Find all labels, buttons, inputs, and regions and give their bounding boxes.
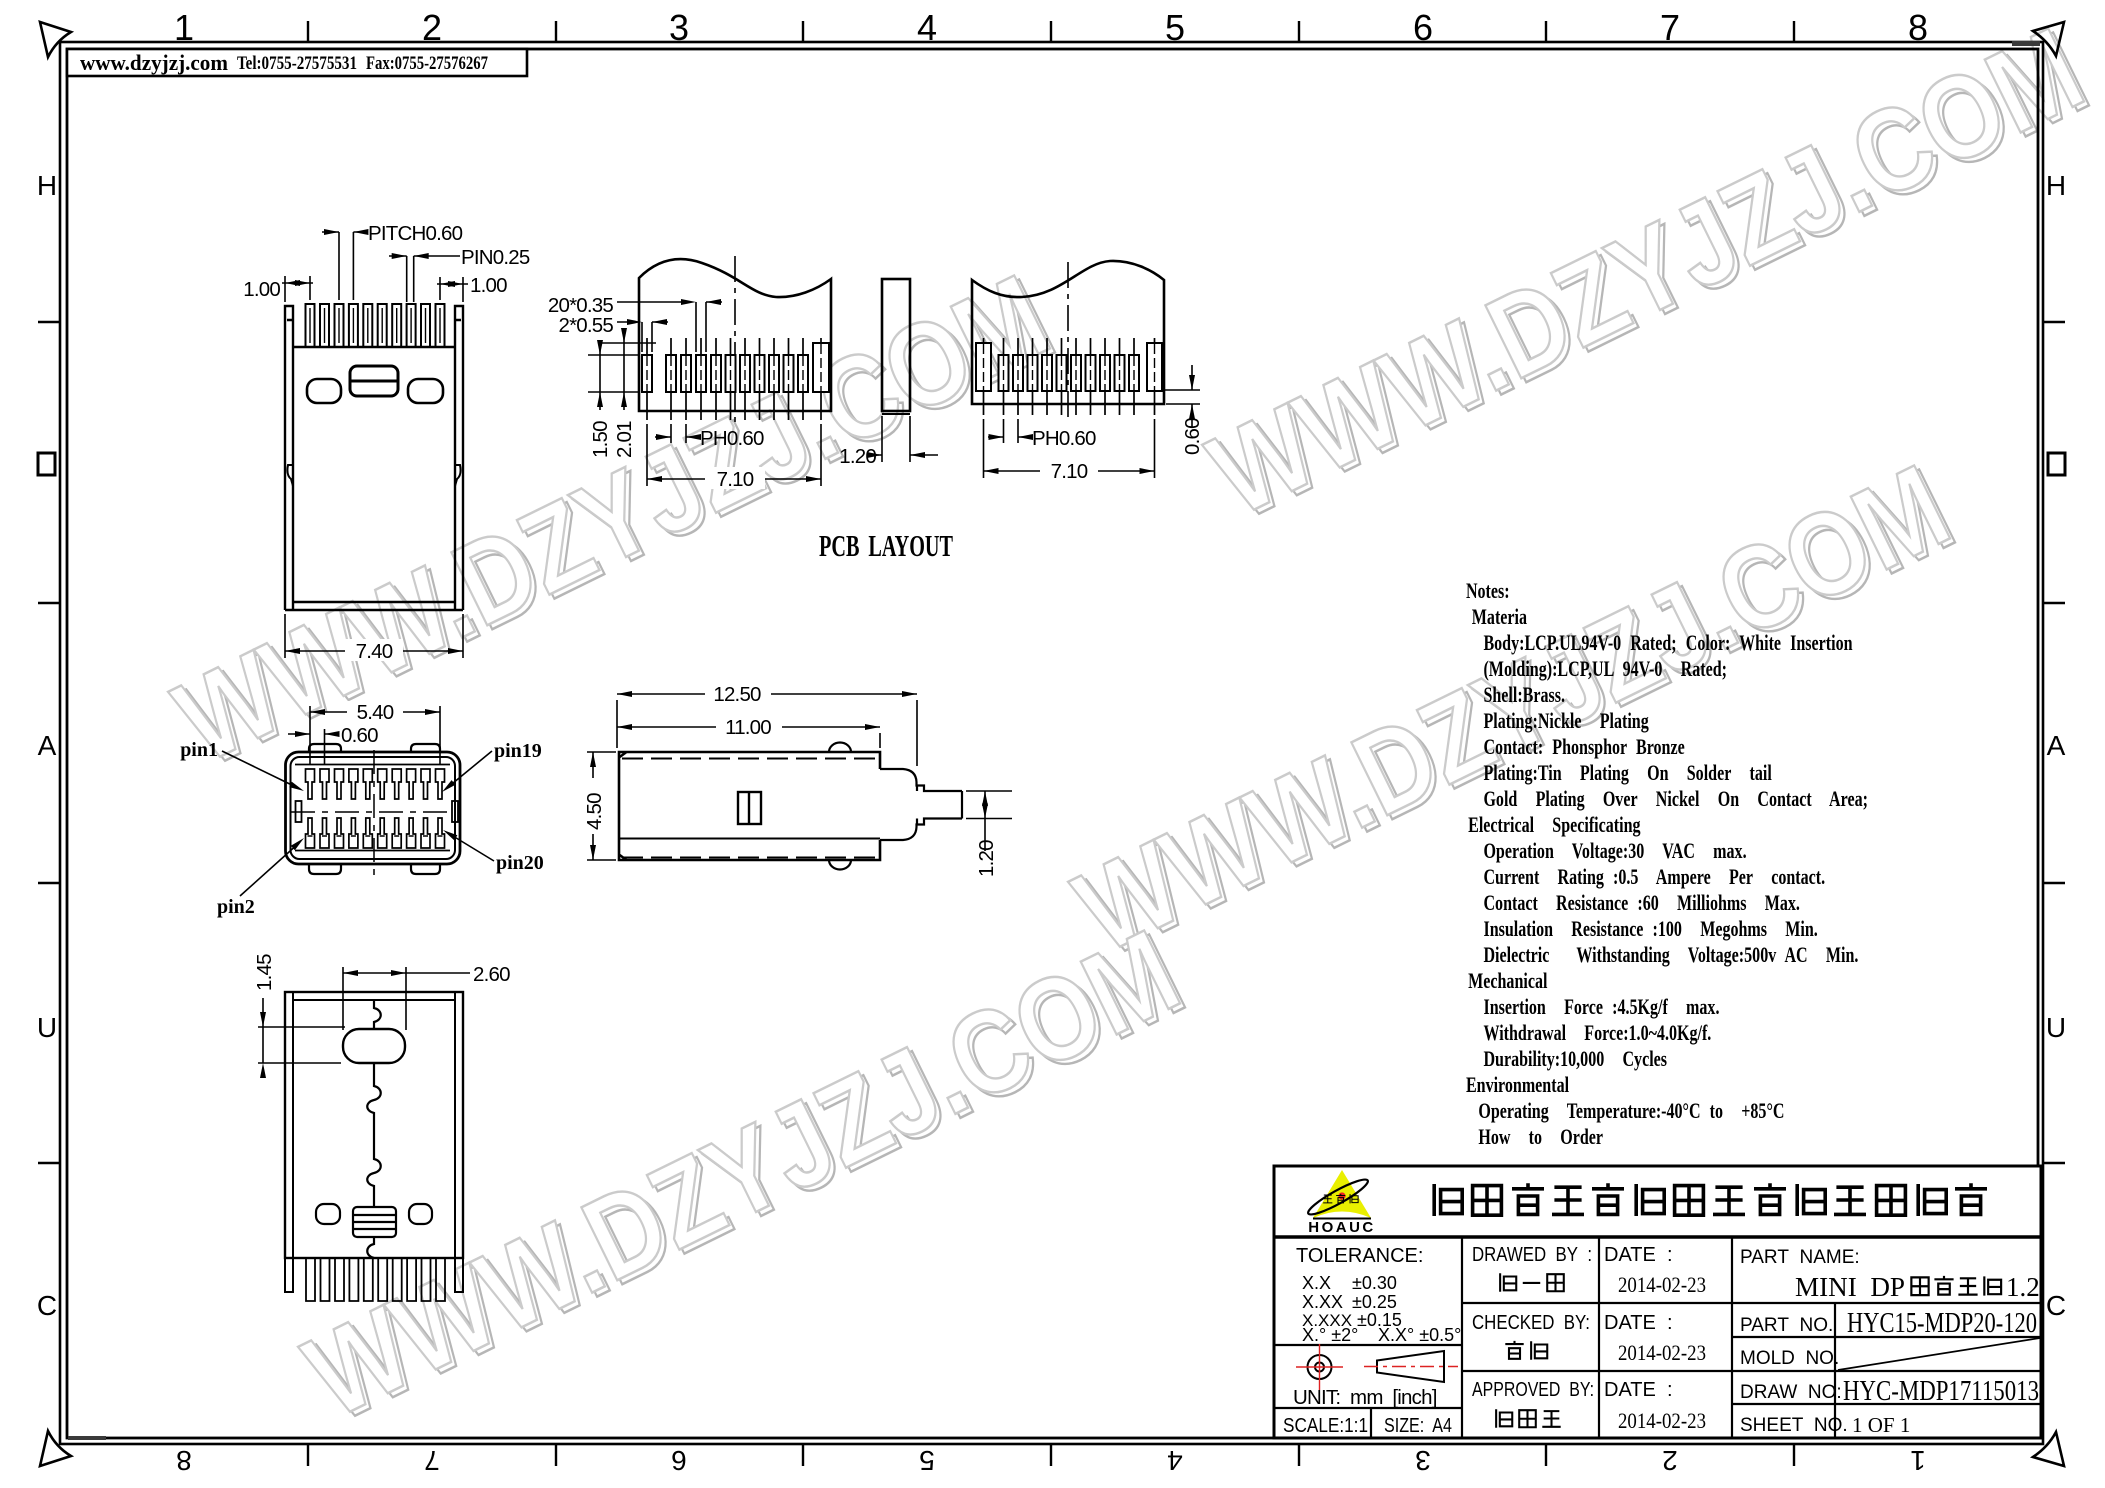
svg-text:Plating:Nickle Plating: Plating:Nickle Plating <box>1483 710 1649 734</box>
svg-text:www.dzyjzj.com: www.dzyjzj.com <box>80 50 228 75</box>
svg-text:Dielectric Withstanding Vol: Dielectric Withstanding Voltage:500v AC … <box>1483 944 1858 968</box>
svg-text:7.10: 7.10 <box>1051 460 1088 483</box>
svg-text:1.2: 1.2 <box>2006 1272 2040 1302</box>
svg-text:Operating Temperature:-40°C t: Operating Temperature:-40°C to +85°C <box>1478 1100 1784 1124</box>
svg-text:PH0.60: PH0.60 <box>700 427 764 450</box>
svg-text:How to Order: How to Order <box>1478 1126 1603 1150</box>
svg-text:PITCH0.60: PITCH0.60 <box>368 222 463 245</box>
svg-text:4.50: 4.50 <box>583 793 606 830</box>
svg-text:SHEET NO.: SHEET NO. <box>1740 1415 1848 1436</box>
svg-text:pin20: pin20 <box>496 852 544 874</box>
svg-text:DRAW NO:: DRAW NO: <box>1740 1382 1842 1403</box>
svg-text:U: U <box>37 1012 57 1043</box>
svg-text:Operation Voltage:30 VAC ma: Operation Voltage:30 VAC max. <box>1483 840 1746 864</box>
svg-text:2.01: 2.01 <box>613 421 636 458</box>
svg-text:Mechanical: Mechanical <box>1468 970 1548 994</box>
svg-text:Durability:10,000 Cycles: Durability:10,000 Cycles <box>1483 1048 1667 1072</box>
svg-text:5.40: 5.40 <box>357 701 394 724</box>
svg-text:5: 5 <box>919 1445 935 1476</box>
svg-text:pin2: pin2 <box>217 896 255 918</box>
svg-text:APPROVED BY:: APPROVED BY: <box>1472 1379 1594 1401</box>
svg-text:Gold Plating Over Nickel O: Gold Plating Over Nickel On Contact Area… <box>1483 788 1868 812</box>
svg-text:3: 3 <box>669 7 689 48</box>
svg-text:1.45: 1.45 <box>253 954 276 991</box>
svg-text:5: 5 <box>1165 7 1185 48</box>
svg-text:X.° ±2°: X.° ±2° <box>1302 1325 1358 1345</box>
svg-text:TOLERANCE:: TOLERANCE: <box>1296 1245 1423 1267</box>
svg-text:1: 1 <box>174 7 194 48</box>
svg-text:C: C <box>37 1290 57 1321</box>
svg-text:Electrical Specificating: Electrical Specificating <box>1468 814 1641 838</box>
svg-text:6: 6 <box>671 1445 687 1476</box>
svg-text:7: 7 <box>1660 7 1680 48</box>
svg-text:PCB LAYOUT: PCB LAYOUT <box>819 528 953 563</box>
svg-text:2014-02-23: 2014-02-23 <box>1618 1340 1706 1365</box>
svg-text:X.X° ±0.5°: X.X° ±0.5° <box>1378 1325 1461 1345</box>
svg-text:UNIT: mm [inch]: UNIT: mm [inch] <box>1293 1386 1437 1409</box>
svg-text:H: H <box>2046 170 2066 201</box>
svg-text:8: 8 <box>1908 7 1928 48</box>
svg-text:Notes:: Notes: <box>1466 580 1510 604</box>
svg-text:7: 7 <box>424 1445 440 1476</box>
svg-text:DRAWED BY :: DRAWED BY : <box>1472 1244 1592 1266</box>
svg-text:2*0.55: 2*0.55 <box>559 314 614 337</box>
svg-text:Body:LCP.UL94V-0 Rated; Color:: Body:LCP.UL94V-0 Rated; Color: White Ins… <box>1483 632 1852 656</box>
svg-text:2.60: 2.60 <box>473 963 510 986</box>
svg-text:HYC-MDP17115013: HYC-MDP17115013 <box>1843 1376 2039 1407</box>
svg-text:A: A <box>38 730 57 761</box>
svg-text:0.60: 0.60 <box>341 724 378 747</box>
svg-text:Tel:0755-27575531: Tel:0755-27575531 <box>237 53 357 74</box>
svg-text:2: 2 <box>1662 1445 1678 1476</box>
svg-text:X.XX: X.XX <box>1302 1292 1343 1312</box>
svg-text:7.40: 7.40 <box>356 640 393 663</box>
svg-text:±0.30: ±0.30 <box>1352 1273 1397 1293</box>
svg-text:7.10: 7.10 <box>717 468 754 491</box>
svg-text:U: U <box>2046 1012 2066 1043</box>
svg-text:1.20: 1.20 <box>975 840 998 877</box>
svg-text:Environmental: Environmental <box>1466 1074 1570 1098</box>
svg-text:4: 4 <box>1167 1445 1183 1476</box>
svg-text:Materia: Materia <box>1472 606 1528 630</box>
svg-text:SIZE: A4: SIZE: A4 <box>1384 1415 1452 1437</box>
svg-text:DATE :: DATE : <box>1604 1379 1673 1401</box>
svg-text:MOLD NO.: MOLD NO. <box>1740 1348 1839 1369</box>
svg-text:8: 8 <box>176 1445 192 1476</box>
svg-text:12.50: 12.50 <box>713 683 761 706</box>
svg-text:SCALE:1:1: SCALE:1:1 <box>1283 1415 1368 1437</box>
svg-text:Current Rating :0.5 Ampere: Current Rating :0.5 Ampere Per contact. <box>1483 866 1825 890</box>
svg-text:1.00: 1.00 <box>243 278 280 301</box>
svg-text:6: 6 <box>1413 7 1433 48</box>
svg-text:PH0.60: PH0.60 <box>1032 427 1096 450</box>
svg-text:4: 4 <box>917 7 937 48</box>
svg-text:Insertion Force :4.5Kg/f max: Insertion Force :4.5Kg/f max. <box>1483 996 1719 1020</box>
svg-text:Contact Resistance :60 Milli: Contact Resistance :60 Milliohms Max. <box>1483 892 1799 916</box>
svg-text:Shell:Brass.: Shell:Brass. <box>1483 684 1565 708</box>
svg-text:CHECKED BY:: CHECKED BY: <box>1472 1312 1590 1334</box>
svg-text:1.00: 1.00 <box>470 274 507 297</box>
svg-text:1 OF 1: 1 OF 1 <box>1852 1413 1910 1437</box>
svg-text:DATE :: DATE : <box>1604 1244 1673 1266</box>
svg-text:HYC15-MDP20-120: HYC15-MDP20-120 <box>1847 1308 2037 1339</box>
svg-text:MINI DP: MINI DP <box>1795 1272 1905 1302</box>
svg-text:3: 3 <box>1415 1445 1431 1476</box>
svg-text:(Molding):LCP,UL 94V-0 Rated;: (Molding):LCP,UL 94V-0 Rated; <box>1483 658 1727 682</box>
svg-text:2014-02-23: 2014-02-23 <box>1618 1272 1706 1297</box>
svg-text:Plating:Tin Plating On Sold: Plating:Tin Plating On Solder tail <box>1483 762 1772 786</box>
svg-text:C: C <box>2046 1290 2066 1321</box>
svg-text:pin19: pin19 <box>494 740 542 762</box>
svg-text:PIN0.25: PIN0.25 <box>461 246 530 269</box>
svg-text:1: 1 <box>1910 1445 1926 1476</box>
svg-text:pin1: pin1 <box>180 739 218 761</box>
svg-text:Insulation Resistance :100 M: Insulation Resistance :100 Megohms Min. <box>1483 918 1817 942</box>
svg-text:11.00: 11.00 <box>725 716 771 739</box>
svg-text:DATE :: DATE : <box>1604 1312 1673 1334</box>
svg-text:PART NAME:: PART NAME: <box>1740 1247 1860 1268</box>
svg-text:2: 2 <box>422 7 442 48</box>
svg-text:1.50: 1.50 <box>589 421 612 458</box>
svg-text:1.20: 1.20 <box>839 445 876 468</box>
svg-text:Fax:0755-27576267: Fax:0755-27576267 <box>366 53 488 74</box>
svg-text:A: A <box>2047 730 2066 761</box>
svg-text:0.60: 0.60 <box>1181 418 1204 455</box>
svg-text:X.X: X.X <box>1302 1273 1331 1293</box>
svg-text:2014-02-23: 2014-02-23 <box>1618 1408 1706 1433</box>
svg-text:Withdrawal Force:1.0~4.0Kg/f.: Withdrawal Force:1.0~4.0Kg/f. <box>1483 1022 1711 1046</box>
svg-text:H: H <box>37 170 57 201</box>
svg-text:HOAUC: HOAUC <box>1308 1219 1376 1236</box>
svg-text:±0.25: ±0.25 <box>1352 1292 1397 1312</box>
svg-text:PART NO.: PART NO. <box>1740 1315 1833 1336</box>
svg-text:Contact: Phonsphor Bronze: Contact: Phonsphor Bronze <box>1483 736 1685 760</box>
